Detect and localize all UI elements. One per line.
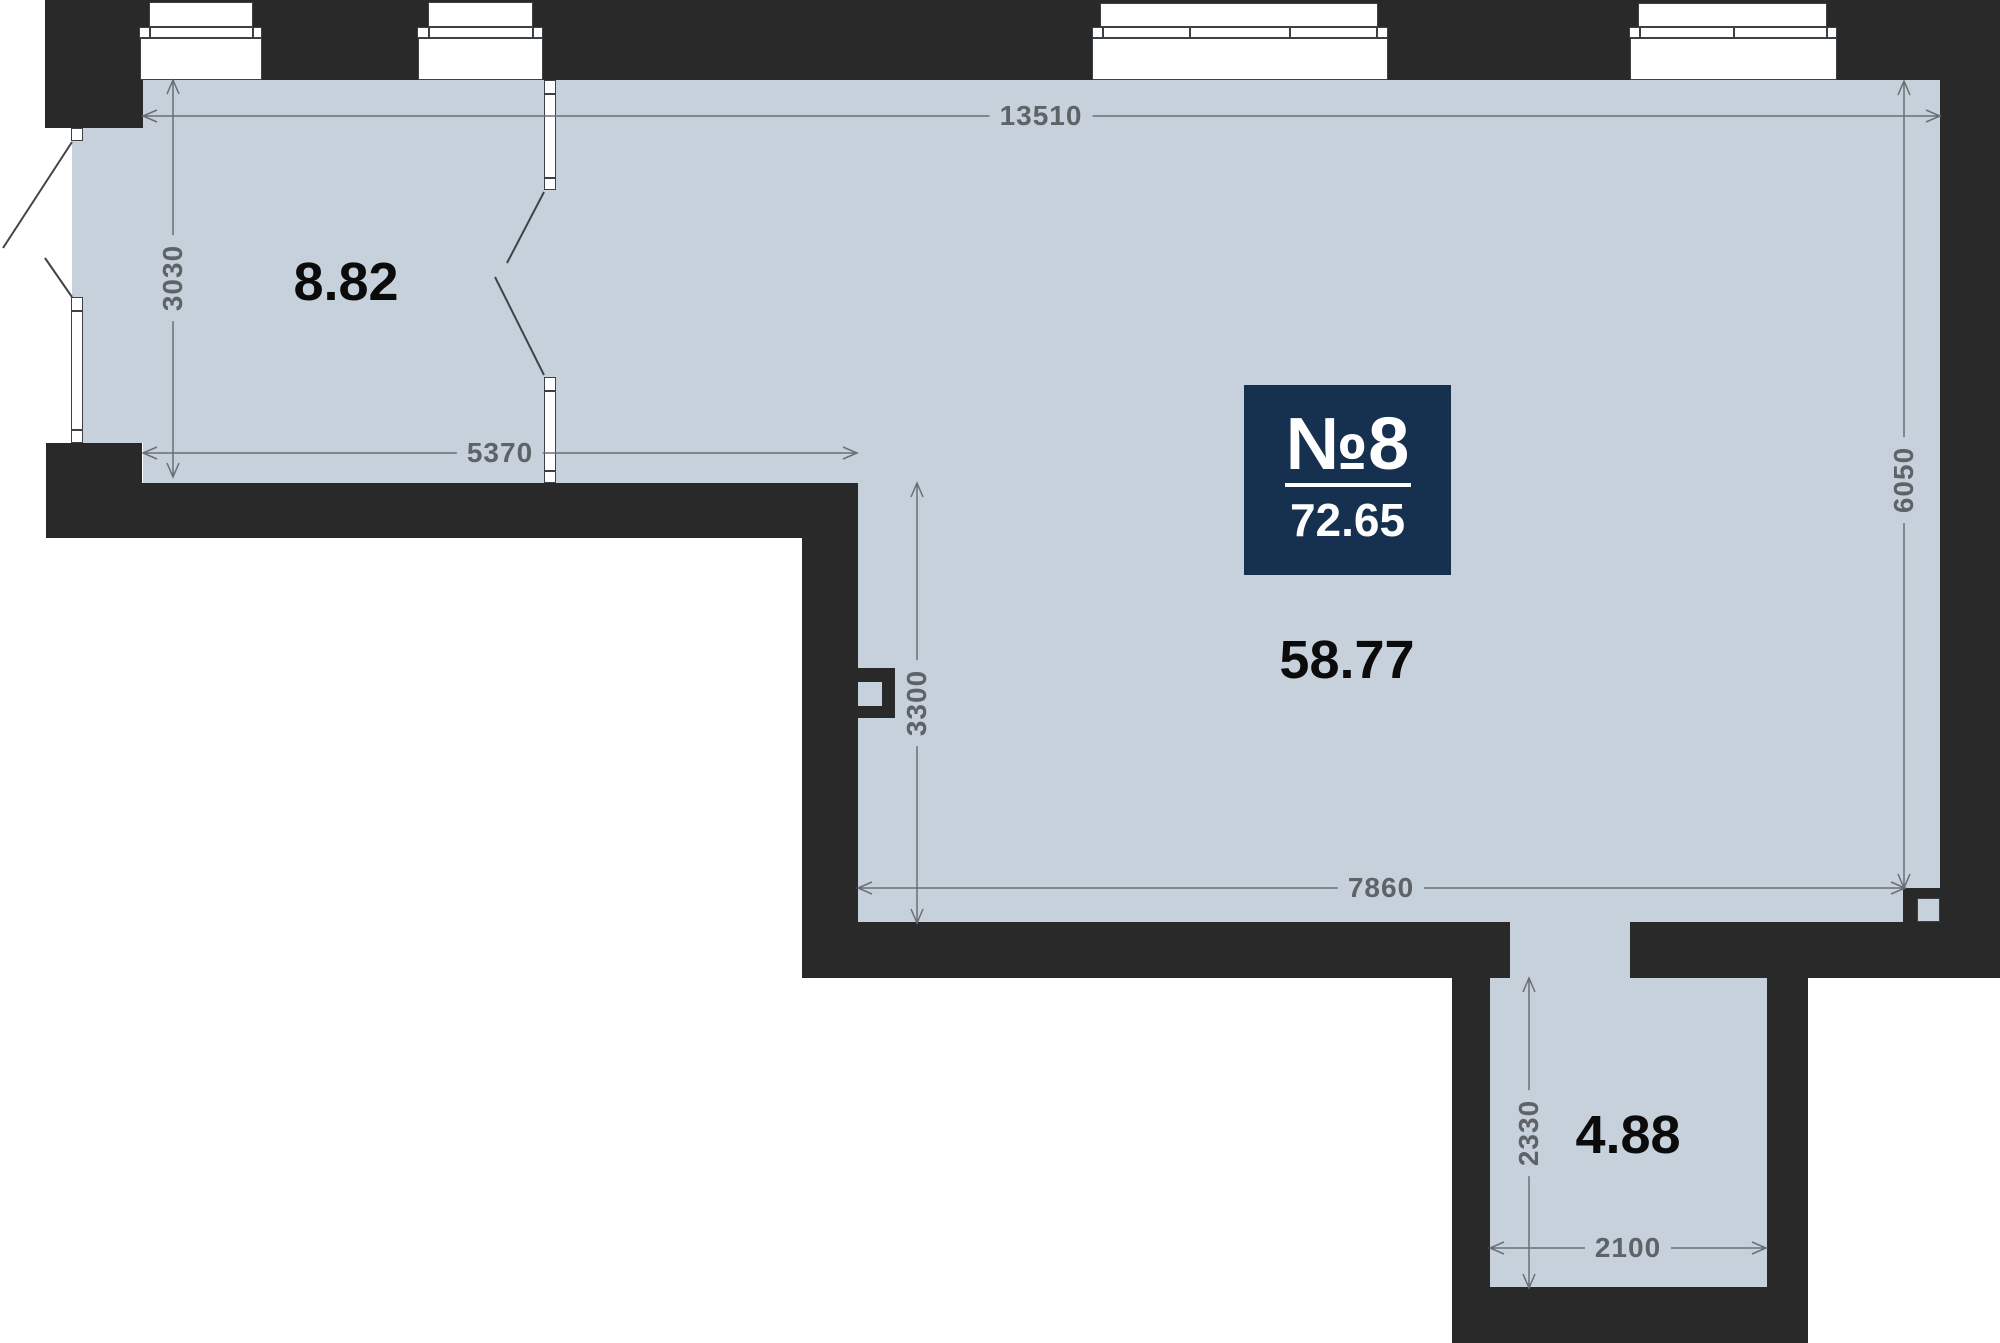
main-area-label: 58.77 <box>1279 633 1414 687</box>
window-2-mullion <box>428 27 430 38</box>
shaft-hollow <box>858 682 882 706</box>
wall-right <box>1940 0 2000 978</box>
window-2-sill <box>418 38 543 80</box>
window-4-mullion <box>1826 27 1828 38</box>
floor-hall-neck <box>1510 922 1630 978</box>
window-3-mullion <box>1289 27 1291 38</box>
interior-door-frame-cap <box>544 93 556 95</box>
wall-step-vertical <box>802 538 858 978</box>
dimension-label-right-height: 6050 <box>1888 437 1920 523</box>
window-left <box>71 297 83 443</box>
window-2-mullion <box>532 27 534 38</box>
window-4-sill <box>1630 38 1837 80</box>
window-3-mullion <box>1189 27 1191 38</box>
dimension-label-room1-width: 5370 <box>457 437 543 469</box>
window-1-mullion <box>149 27 151 38</box>
window-3-sill <box>1092 38 1388 80</box>
interior-door-frame-bottom <box>544 377 556 483</box>
dimension-label-room1-height: 3030 <box>157 235 189 321</box>
window-left-mullion <box>71 429 83 431</box>
window-1-outer-pane <box>149 2 253 27</box>
wall-top-left-block <box>45 0 143 128</box>
interior-door-frame-top <box>544 80 556 190</box>
window-3-outer-pane <box>1100 3 1378 27</box>
unit-number: №8 <box>1244 407 1451 481</box>
badge-divider <box>1285 483 1411 487</box>
wall-room1-bottom <box>142 483 858 538</box>
wall-hall-bottom <box>1452 1287 1808 1343</box>
unit-badge: №8 72.65 <box>1244 385 1451 575</box>
window-3-frame-band <box>1092 27 1388 38</box>
wall-bottom-left-block <box>46 443 142 538</box>
dimension-label-step-height: 3300 <box>901 660 933 746</box>
room1-area-label: 8.82 <box>293 255 398 309</box>
corner-niche <box>1917 898 1940 922</box>
interior-door-frame-cap <box>544 470 556 472</box>
entry-door-jamb <box>71 128 83 141</box>
window-3-mullion <box>1376 27 1378 38</box>
wall-main-bottom-left <box>802 922 1510 978</box>
floor-plan: 13510 3030 5370 3300 6050 7860 2330 2100… <box>0 0 2000 1343</box>
dimension-label-hall-height: 2330 <box>1513 1090 1545 1176</box>
window-3-mullion <box>1102 27 1104 38</box>
dimension-label-top-width: 13510 <box>990 100 1093 132</box>
interior-door-frame-cap <box>544 177 556 179</box>
wall-corner-bar-horizontal <box>1917 888 1940 898</box>
entry-door-leaf <box>3 142 72 248</box>
interior-door-frame-cap <box>544 390 556 392</box>
window-1-frame-band <box>139 27 262 38</box>
unit-total-area: 72.65 <box>1244 497 1451 543</box>
window-4-mullion <box>1639 27 1641 38</box>
entry-door-leaf <box>45 258 72 297</box>
window-2-outer-pane <box>428 2 533 27</box>
window-4-outer-pane <box>1638 3 1827 27</box>
window-4-mullion <box>1733 27 1735 38</box>
window-left-mullion <box>71 310 83 312</box>
window-1-sill <box>140 38 262 80</box>
wall-main-bottom-right <box>1630 922 2000 978</box>
window-1-mullion <box>252 27 254 38</box>
dimension-label-hall-width: 2100 <box>1585 1232 1671 1264</box>
wall-corner-bar-vertical <box>1903 888 1917 922</box>
hall-area-label: 4.88 <box>1575 1108 1680 1162</box>
window-2-frame-band <box>417 27 543 38</box>
floor-top-band <box>143 80 1940 483</box>
dimension-label-main-width: 7860 <box>1338 872 1424 904</box>
